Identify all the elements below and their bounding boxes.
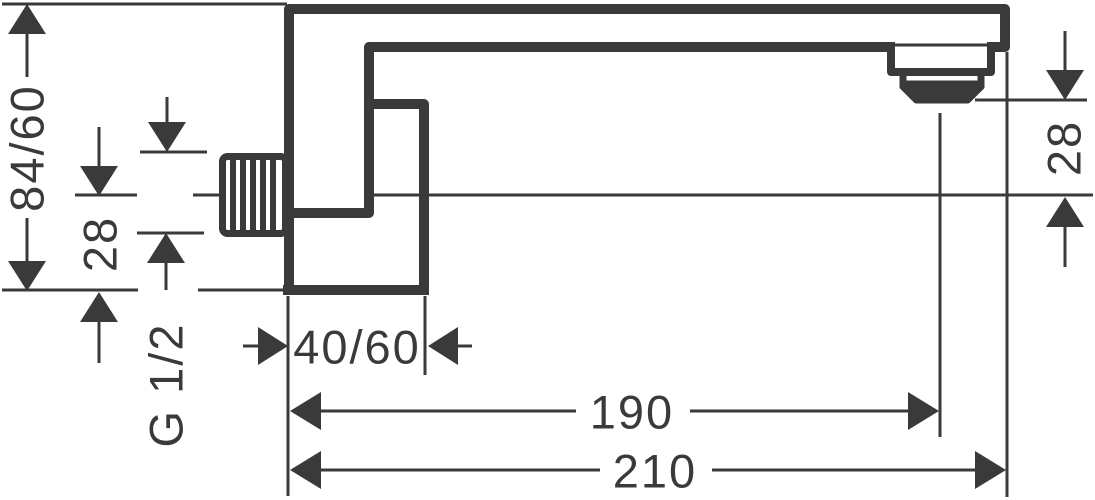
arrow-down-icon — [80, 166, 118, 196]
dimension-reach-to-outlet: 190 — [290, 385, 939, 438]
dimension-overall-height: 84/60 — [0, 4, 53, 291]
dimension-base-depth: 40/60 — [243, 320, 472, 373]
arrow-left-icon — [290, 392, 321, 430]
dimension-overall-length: 210 — [290, 444, 1006, 497]
arrow-down-icon — [8, 261, 46, 291]
dimension-outlet-offset: 28 — [1037, 31, 1090, 267]
technical-drawing: 84/60 28 G 1/2 40/60 190 210 — [0, 0, 1095, 500]
reach-to-outlet-label: 190 — [590, 385, 674, 438]
arrow-down-icon — [148, 122, 186, 152]
outlet-nozzle — [886, 42, 996, 101]
arrow-up-icon — [8, 4, 46, 34]
nozzle-aerator-ring — [902, 84, 982, 101]
arrow-down-icon — [1046, 70, 1084, 100]
arrow-up-icon — [1046, 197, 1084, 227]
dimension-axis-to-bottom: 28 — [73, 127, 126, 363]
dimension-thread: G 1/2 — [139, 97, 192, 447]
arrow-right-icon — [975, 451, 1006, 489]
outlet-offset-label: 28 — [1037, 120, 1090, 176]
overall-height-label: 84/60 — [0, 84, 53, 212]
arrow-up-icon — [147, 233, 185, 263]
arrow-up-icon — [80, 292, 118, 322]
arrow-left-icon — [428, 327, 458, 365]
base-depth-label: 40/60 — [293, 320, 421, 373]
thread-connector — [223, 157, 286, 234]
spout-dimension-drawing: 84/60 28 G 1/2 40/60 190 210 — [0, 0, 1095, 500]
base-block-front — [366, 104, 424, 293]
body-inner-profile — [284, 47, 890, 213]
axis-to-bottom-label: 28 — [73, 216, 126, 272]
arrow-left-icon — [290, 451, 321, 489]
overall-length-label: 210 — [613, 444, 697, 497]
thread-label: G 1/2 — [139, 323, 192, 448]
arrow-right-icon — [908, 392, 939, 430]
arrow-right-icon — [258, 327, 288, 365]
